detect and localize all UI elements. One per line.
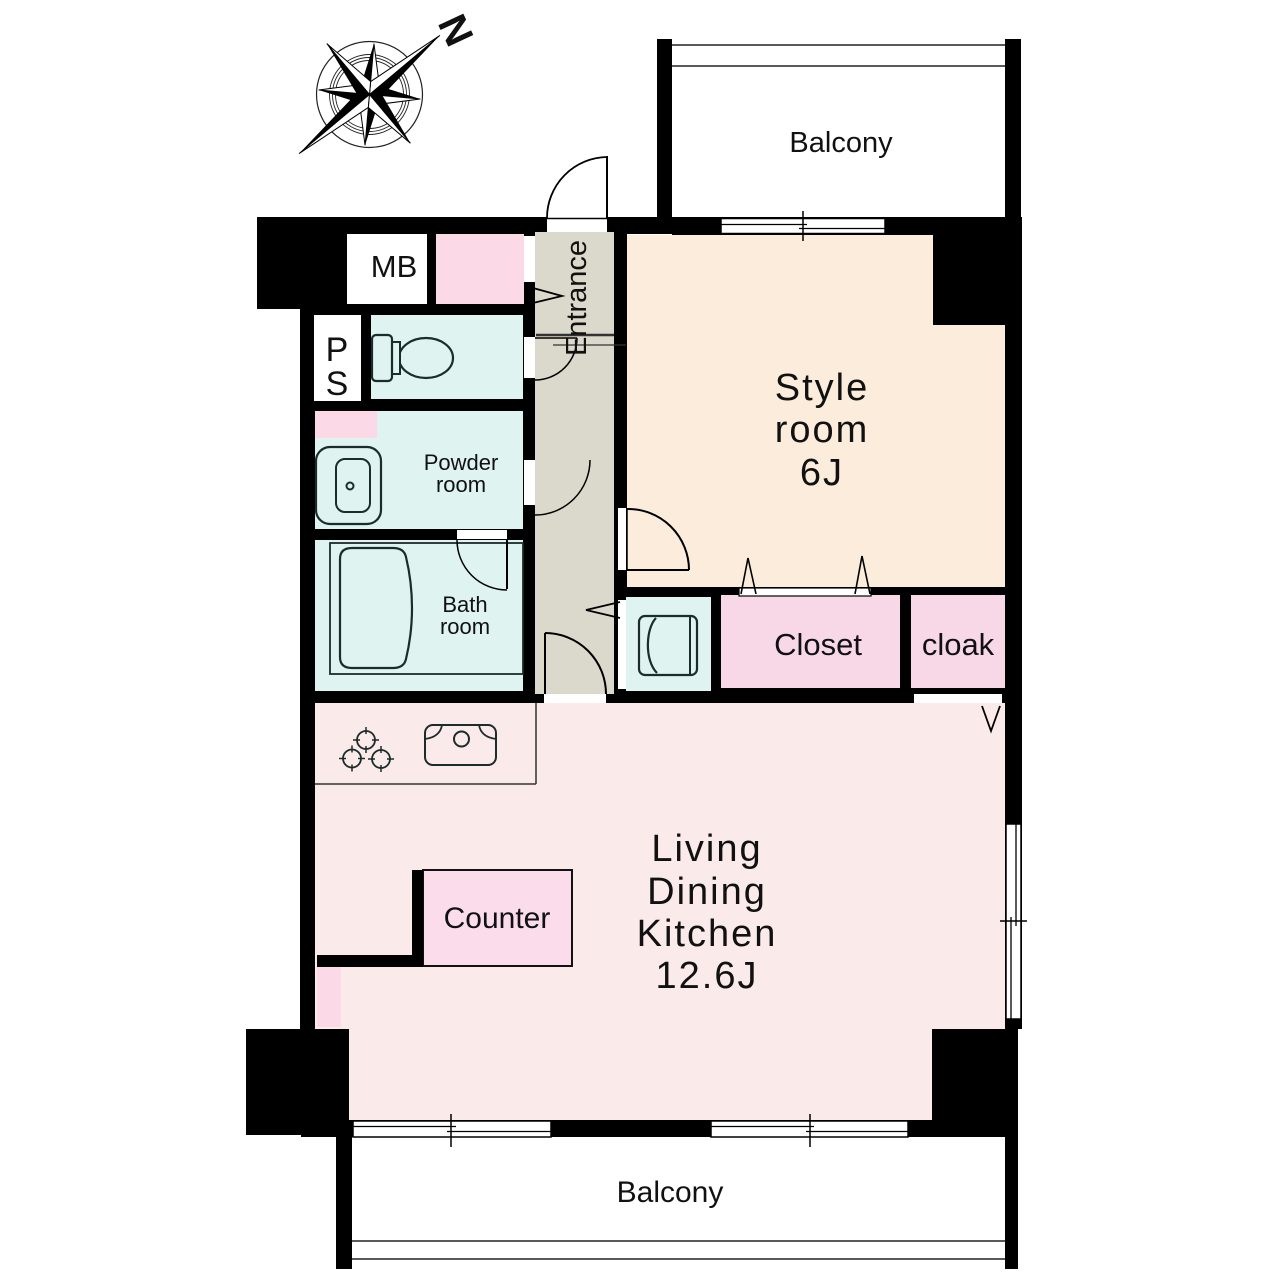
svg-text:Counter: Counter — [444, 902, 551, 935]
svg-text:room: room — [436, 472, 486, 497]
svg-text:Living: Living — [651, 828, 762, 870]
svg-text:Balcony: Balcony — [617, 1176, 724, 1209]
svg-text:Entrance: Entrance — [561, 240, 593, 356]
svg-text:room: room — [440, 614, 490, 639]
svg-text:room: room — [775, 409, 870, 451]
svg-text:Style: Style — [775, 367, 869, 409]
svg-text:cloak: cloak — [922, 627, 995, 662]
svg-text:12.6J: 12.6J — [656, 955, 759, 997]
svg-text:Balcony: Balcony — [789, 127, 893, 159]
svg-text:P: P — [326, 331, 349, 369]
svg-text:Closet: Closet — [774, 627, 862, 662]
svg-text:Kitchen: Kitchen — [637, 913, 778, 955]
svg-text:6J: 6J — [800, 452, 844, 494]
svg-text:MB: MB — [371, 249, 418, 284]
svg-text:S: S — [326, 365, 349, 403]
svg-text:Dining: Dining — [647, 871, 767, 913]
